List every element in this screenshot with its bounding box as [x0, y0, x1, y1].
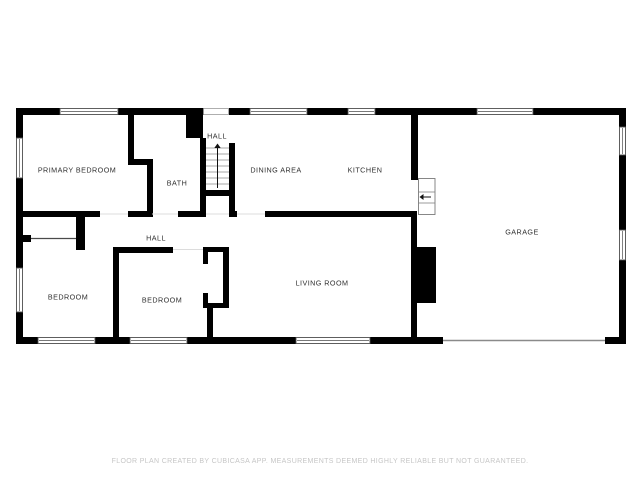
- wall: [113, 247, 173, 253]
- wall: [200, 138, 206, 217]
- wall: [307, 108, 348, 115]
- room-label-hall-lower: HALL: [146, 234, 166, 243]
- wall: [229, 211, 237, 217]
- walls-layer: [16, 108, 626, 344]
- wall: [619, 155, 626, 230]
- wall: [128, 159, 153, 165]
- wall: [202, 190, 230, 196]
- wall: [187, 337, 296, 344]
- stairs-up-arrow-head: [214, 144, 220, 149]
- floor-plan-canvas: PRIMARY BEDROOMBATHHALLDINING AREAKITCHE…: [0, 0, 640, 480]
- floor-plan: PRIMARY BEDROOMBATHHALLDINING AREAKITCHE…: [0, 0, 640, 480]
- room-label-hall-upper: HALL: [207, 132, 227, 141]
- wall: [229, 143, 235, 217]
- wall: [128, 113, 134, 160]
- wall: [147, 165, 153, 217]
- disclaimer-text: FLOOR PLAN CREATED BY CUBICASA APP. MEAS…: [112, 458, 529, 465]
- wall: [619, 108, 626, 127]
- wall: [16, 108, 23, 138]
- wall: [203, 303, 229, 308]
- wall: [178, 211, 202, 217]
- wall: [207, 308, 213, 337]
- stairwell-opening: [204, 109, 229, 115]
- wall: [95, 337, 130, 344]
- wall: [375, 108, 477, 115]
- room-label-bedroom-left: BEDROOM: [48, 293, 88, 302]
- wall: [113, 247, 119, 337]
- fireplace: [416, 247, 436, 303]
- wall: [265, 211, 417, 217]
- footer-layer: FLOOR PLAN CREATED BY CUBICASA APP. MEAS…: [112, 458, 529, 465]
- wall: [411, 111, 418, 180]
- wall: [186, 113, 203, 138]
- wall: [23, 235, 31, 242]
- wall: [223, 247, 229, 308]
- wall: [370, 337, 443, 344]
- windows-layer: [17, 109, 626, 344]
- room-label-primary-bedroom: PRIMARY BEDROOM: [38, 166, 116, 175]
- wall: [619, 260, 626, 344]
- wall: [203, 293, 208, 303]
- room-label-garage: GARAGE: [505, 228, 538, 237]
- labels-layer: PRIMARY BEDROOMBATHHALLDINING AREAKITCHE…: [38, 132, 539, 305]
- room-label-bedroom-middle: BEDROOM: [142, 296, 182, 305]
- room-label-living-room: LIVING ROOM: [296, 279, 349, 288]
- wall: [76, 217, 85, 250]
- room-label-bath: BATH: [167, 179, 187, 188]
- wall: [16, 337, 38, 344]
- wall: [128, 211, 151, 217]
- wall: [533, 108, 626, 115]
- wall: [229, 108, 250, 115]
- room-label-kitchen: KITCHEN: [348, 166, 383, 175]
- wall: [16, 211, 100, 217]
- wall: [203, 252, 208, 264]
- wall: [16, 178, 23, 268]
- room-label-dining-area: DINING AREA: [250, 166, 301, 175]
